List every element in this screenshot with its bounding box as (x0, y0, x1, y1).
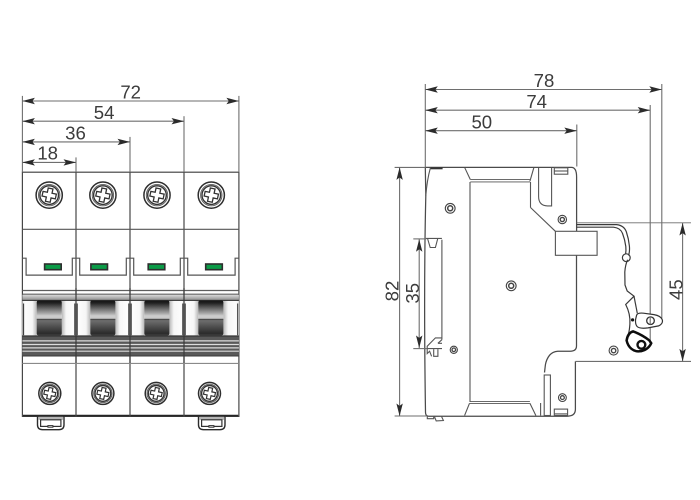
svg-text:82: 82 (382, 281, 403, 302)
svg-text:78: 78 (534, 70, 555, 91)
svg-text:36: 36 (65, 122, 86, 143)
svg-text:74: 74 (526, 91, 547, 112)
svg-text:18: 18 (37, 143, 58, 164)
svg-text:35: 35 (402, 283, 423, 304)
svg-text:54: 54 (94, 102, 115, 123)
svg-text:72: 72 (120, 81, 141, 102)
svg-text:45: 45 (665, 279, 686, 300)
svg-text:50: 50 (471, 112, 492, 133)
